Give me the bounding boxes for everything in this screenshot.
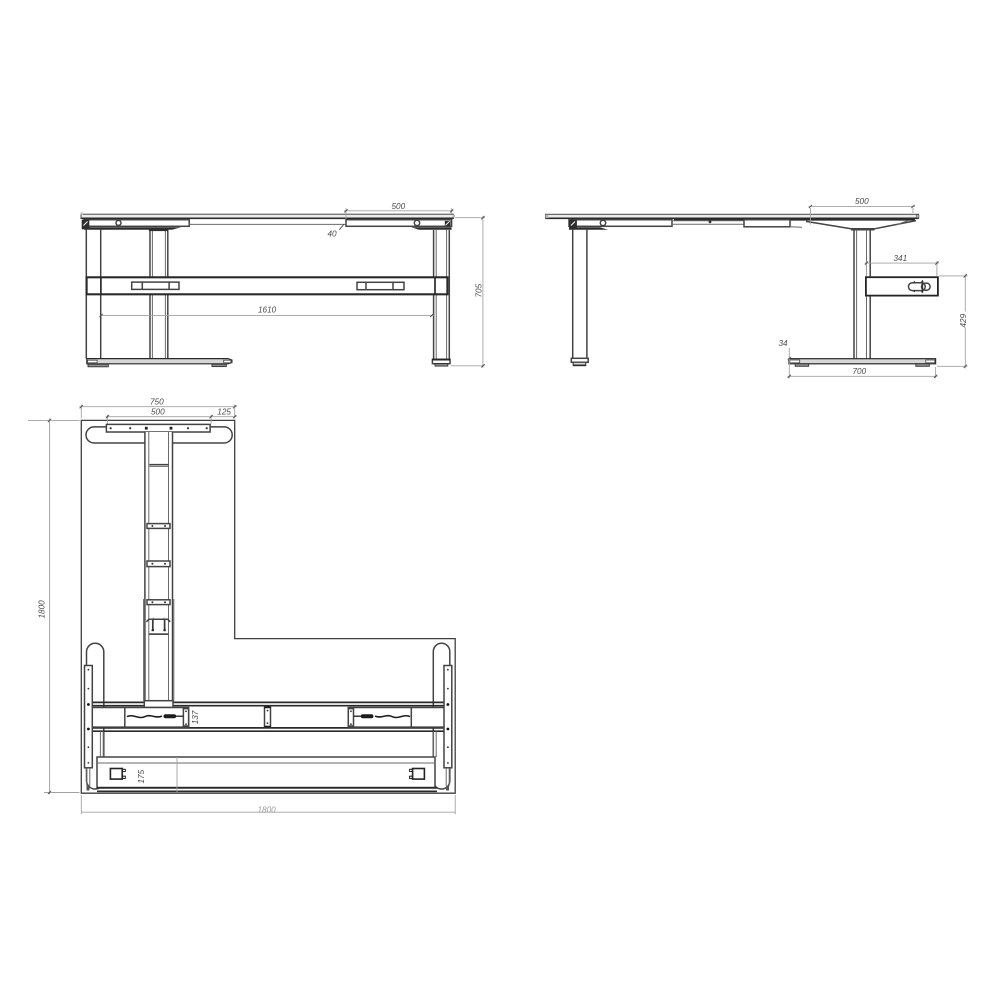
svg-text:125: 125 [217, 408, 231, 417]
svg-text:175: 175 [137, 769, 146, 783]
svg-text:500: 500 [855, 197, 869, 206]
svg-text:1610: 1610 [258, 305, 277, 314]
svg-text:429: 429 [959, 313, 968, 327]
svg-text:500: 500 [151, 408, 165, 417]
svg-text:34: 34 [779, 339, 789, 348]
svg-text:500: 500 [392, 202, 406, 211]
svg-text:750: 750 [150, 397, 164, 406]
svg-text:40: 40 [328, 229, 338, 238]
svg-text:1800: 1800 [38, 600, 47, 619]
svg-text:341: 341 [894, 254, 908, 263]
svg-text:1800: 1800 [258, 806, 277, 815]
svg-text:700: 700 [853, 367, 867, 376]
svg-text:705: 705 [474, 283, 483, 297]
svg-text:137: 137 [191, 710, 200, 724]
